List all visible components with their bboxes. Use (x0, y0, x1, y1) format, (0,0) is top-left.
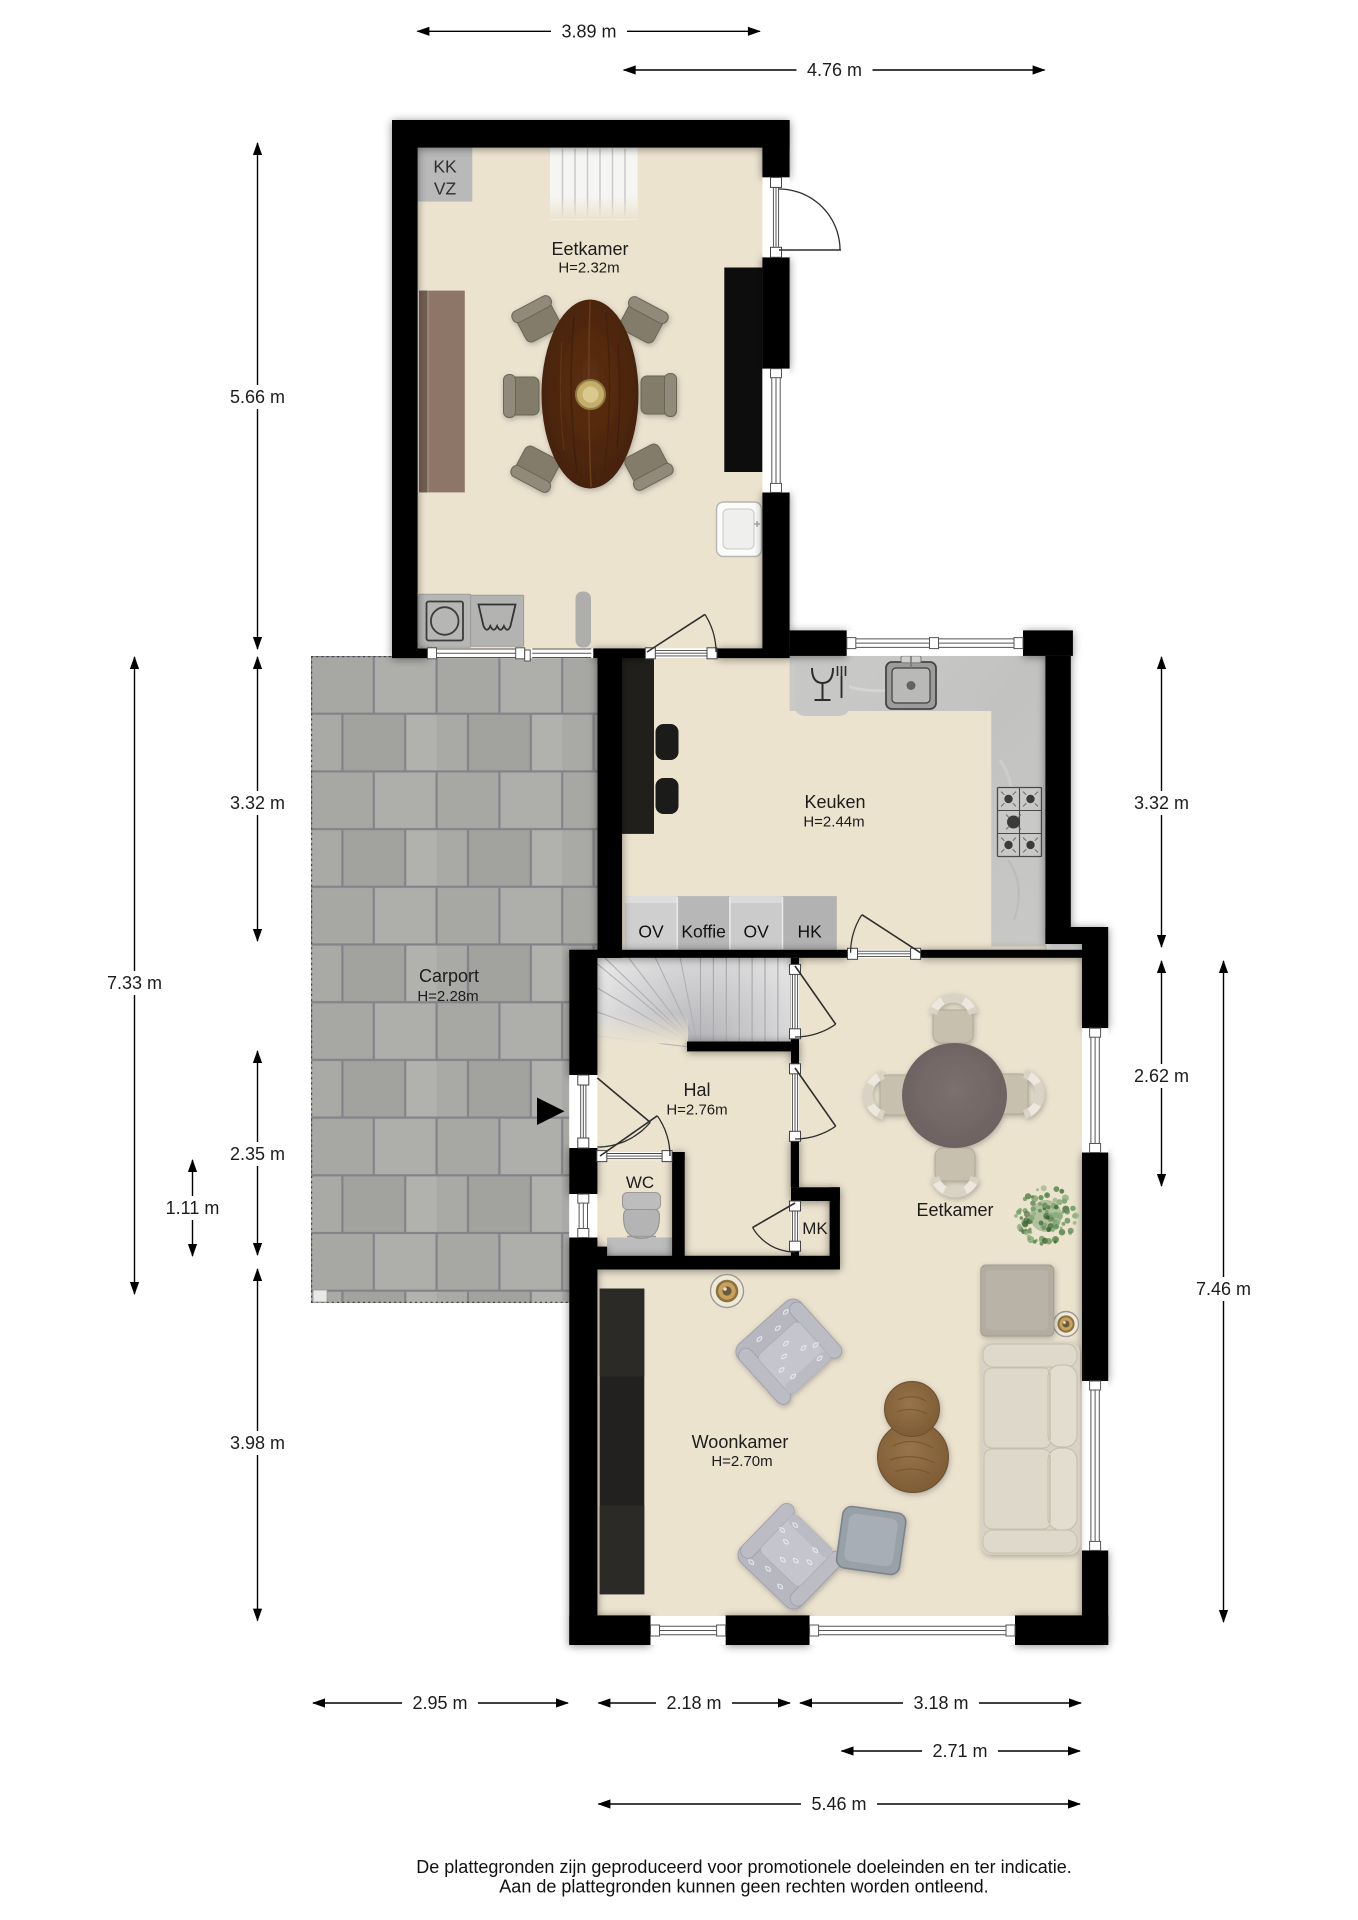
svg-text:OV: OV (744, 922, 770, 942)
svg-text:Keuken: Keuken (804, 792, 865, 812)
svg-text:2.71 m: 2.71 m (932, 1741, 987, 1761)
svg-text:1.11 m: 1.11 m (166, 1198, 220, 1218)
svg-text:H=2.28m: H=2.28m (417, 988, 478, 1005)
svg-text:Eetkamer: Eetkamer (916, 1200, 993, 1220)
svg-text:4.76 m: 4.76 m (807, 60, 862, 80)
svg-text:MK: MK (802, 1219, 828, 1238)
svg-text:Hal: Hal (683, 1080, 710, 1100)
svg-text:5.66 m: 5.66 m (230, 387, 285, 407)
svg-text:OV: OV (638, 922, 664, 942)
svg-text:H=2.32m: H=2.32m (558, 260, 619, 277)
svg-text:H=2.70m: H=2.70m (711, 1453, 772, 1470)
svg-text:H=2.44m: H=2.44m (803, 814, 864, 831)
svg-text:Aan de plattegronden kunnen ge: Aan de plattegronden kunnen geen rechten… (499, 1877, 988, 1897)
svg-text:7.46 m: 7.46 m (1196, 1279, 1251, 1299)
svg-text:HK: HK (797, 922, 822, 942)
svg-text:3.18 m: 3.18 m (913, 1693, 968, 1713)
svg-text:H=2.76m: H=2.76m (666, 1102, 727, 1119)
svg-text:VZ: VZ (434, 179, 457, 199)
svg-text:De plattegronden zijn geproduc: De plattegronden zijn geproduceerd voor … (416, 1857, 1071, 1877)
svg-text:Woonkamer: Woonkamer (692, 1432, 789, 1452)
svg-text:Eetkamer: Eetkamer (551, 239, 628, 259)
svg-text:KK: KK (433, 157, 457, 177)
svg-text:2.62 m: 2.62 m (1134, 1066, 1189, 1086)
svg-text:3.32 m: 3.32 m (230, 793, 285, 813)
svg-text:2.35 m: 2.35 m (230, 1144, 285, 1164)
svg-text:3.32 m: 3.32 m (1134, 793, 1189, 813)
svg-text:3.98 m: 3.98 m (230, 1433, 285, 1453)
svg-text:5.46 m: 5.46 m (811, 1794, 866, 1814)
svg-text:WC: WC (626, 1173, 654, 1192)
svg-text:7.33 m: 7.33 m (107, 973, 162, 993)
svg-text:Koffie: Koffie (681, 922, 725, 942)
svg-text:2.18 m: 2.18 m (666, 1693, 721, 1713)
svg-text:3.89 m: 3.89 m (561, 22, 616, 42)
svg-text:2.95 m: 2.95 m (412, 1693, 467, 1713)
svg-text:Carport: Carport (419, 966, 479, 986)
